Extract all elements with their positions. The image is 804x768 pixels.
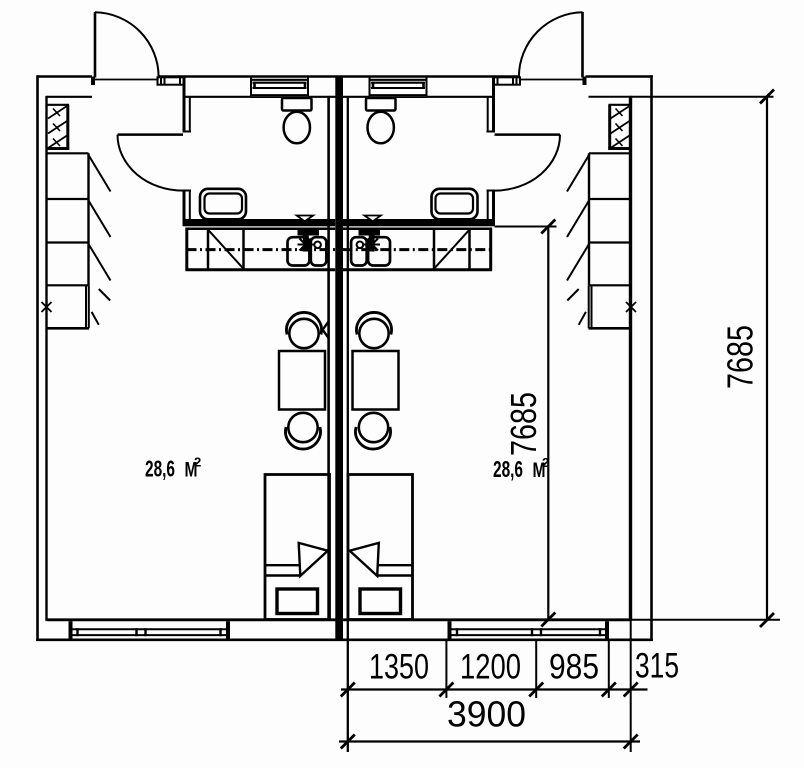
svg-text:28,6: 28,6 <box>145 456 175 482</box>
svg-text:1200: 1200 <box>460 648 521 687</box>
svg-text:2: 2 <box>194 455 201 470</box>
svg-text:315: 315 <box>635 647 679 686</box>
svg-text:7685: 7685 <box>720 325 761 389</box>
svg-text:2: 2 <box>542 455 549 470</box>
svg-text:1350: 1350 <box>369 648 429 687</box>
svg-text:7685: 7685 <box>503 392 544 456</box>
svg-text:985: 985 <box>549 648 599 687</box>
svg-text:28,6: 28,6 <box>493 456 523 482</box>
svg-text:3900: 3900 <box>447 694 526 735</box>
